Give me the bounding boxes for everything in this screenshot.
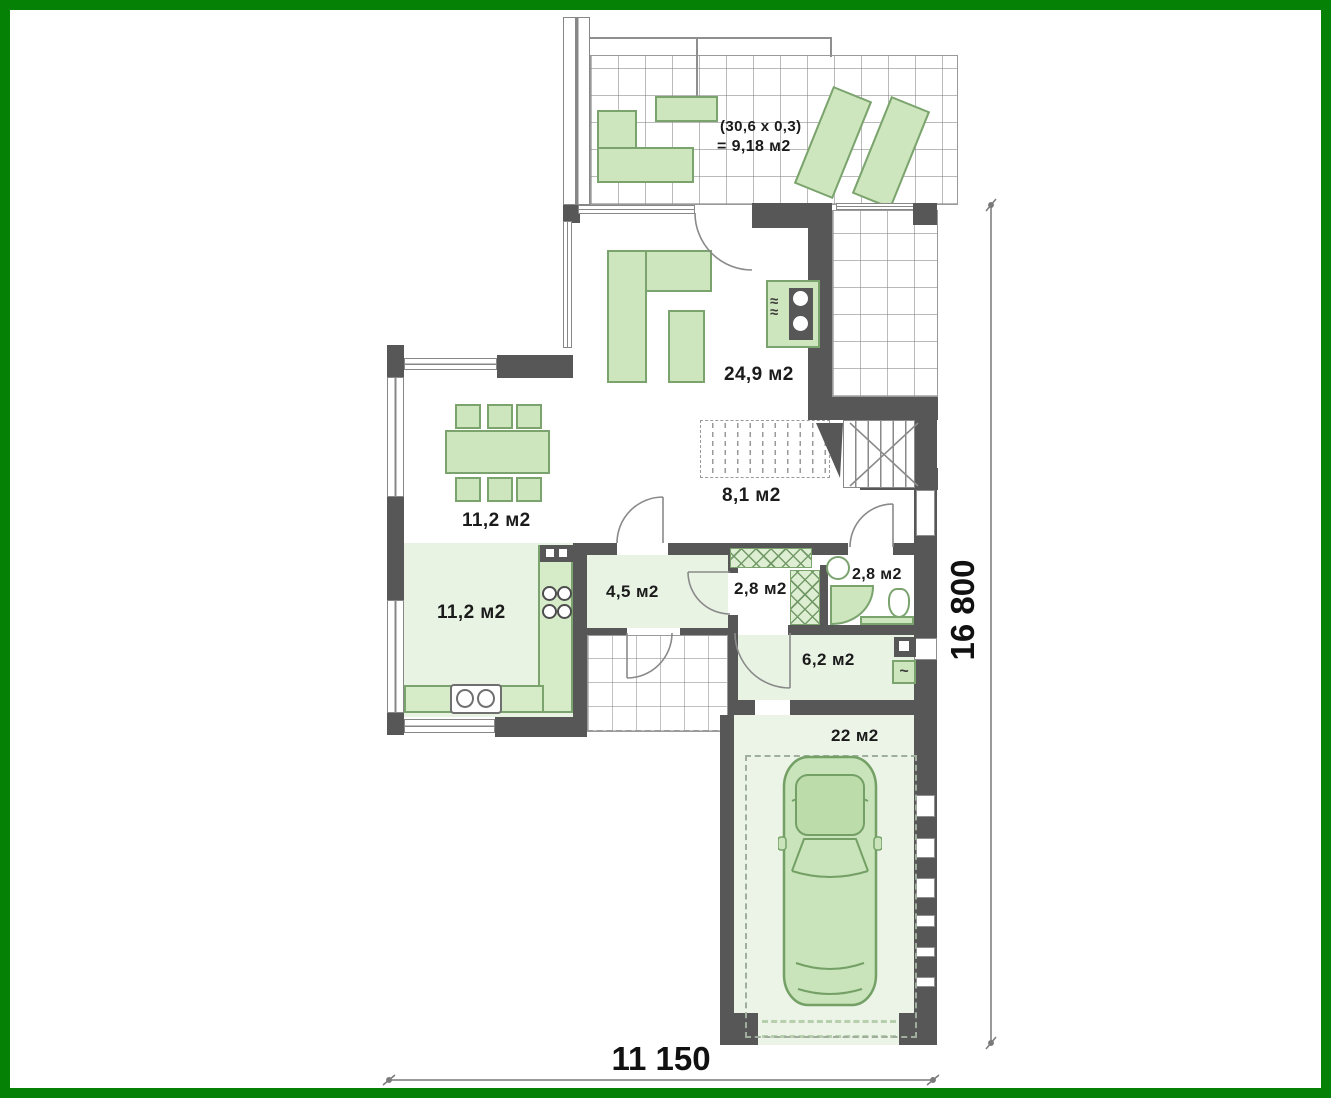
floor-plan: (30,6 x 0,3) = 9,18 м2 ≈≈ 24,9 м2 xyxy=(0,0,1331,1098)
door-arc-wc xyxy=(688,572,730,614)
label-garage-area: 22 м2 xyxy=(831,726,879,746)
label-living-area: 24,9 м2 xyxy=(724,364,794,386)
label-hall-area: 4,5 м2 xyxy=(606,582,659,602)
label-dining-area: 11,2 м2 xyxy=(462,510,531,532)
door-arc-bathroom xyxy=(850,504,893,547)
plan-line-overlay xyxy=(0,0,1331,1098)
label-kitchen-area: 11,2 м2 xyxy=(437,602,506,624)
stairs-wedge xyxy=(816,423,843,478)
door-arc-entrance xyxy=(627,633,672,678)
label-wc-area: 2,8 м2 xyxy=(734,579,787,599)
label-utility-area: 6,2 м2 xyxy=(802,650,855,670)
label-stair-hall-area: 8,1 м2 xyxy=(722,485,781,507)
door-arc-living-terrace xyxy=(695,213,752,270)
door-arc-utility xyxy=(735,633,790,688)
door-arc-dining-hall xyxy=(617,497,663,543)
terrace-note-line1: (30,6 x 0,3) xyxy=(720,118,802,135)
terrace-note-line2: = 9,18 м2 xyxy=(717,138,791,156)
label-bathroom-area: 2,8 м2 xyxy=(852,566,902,584)
